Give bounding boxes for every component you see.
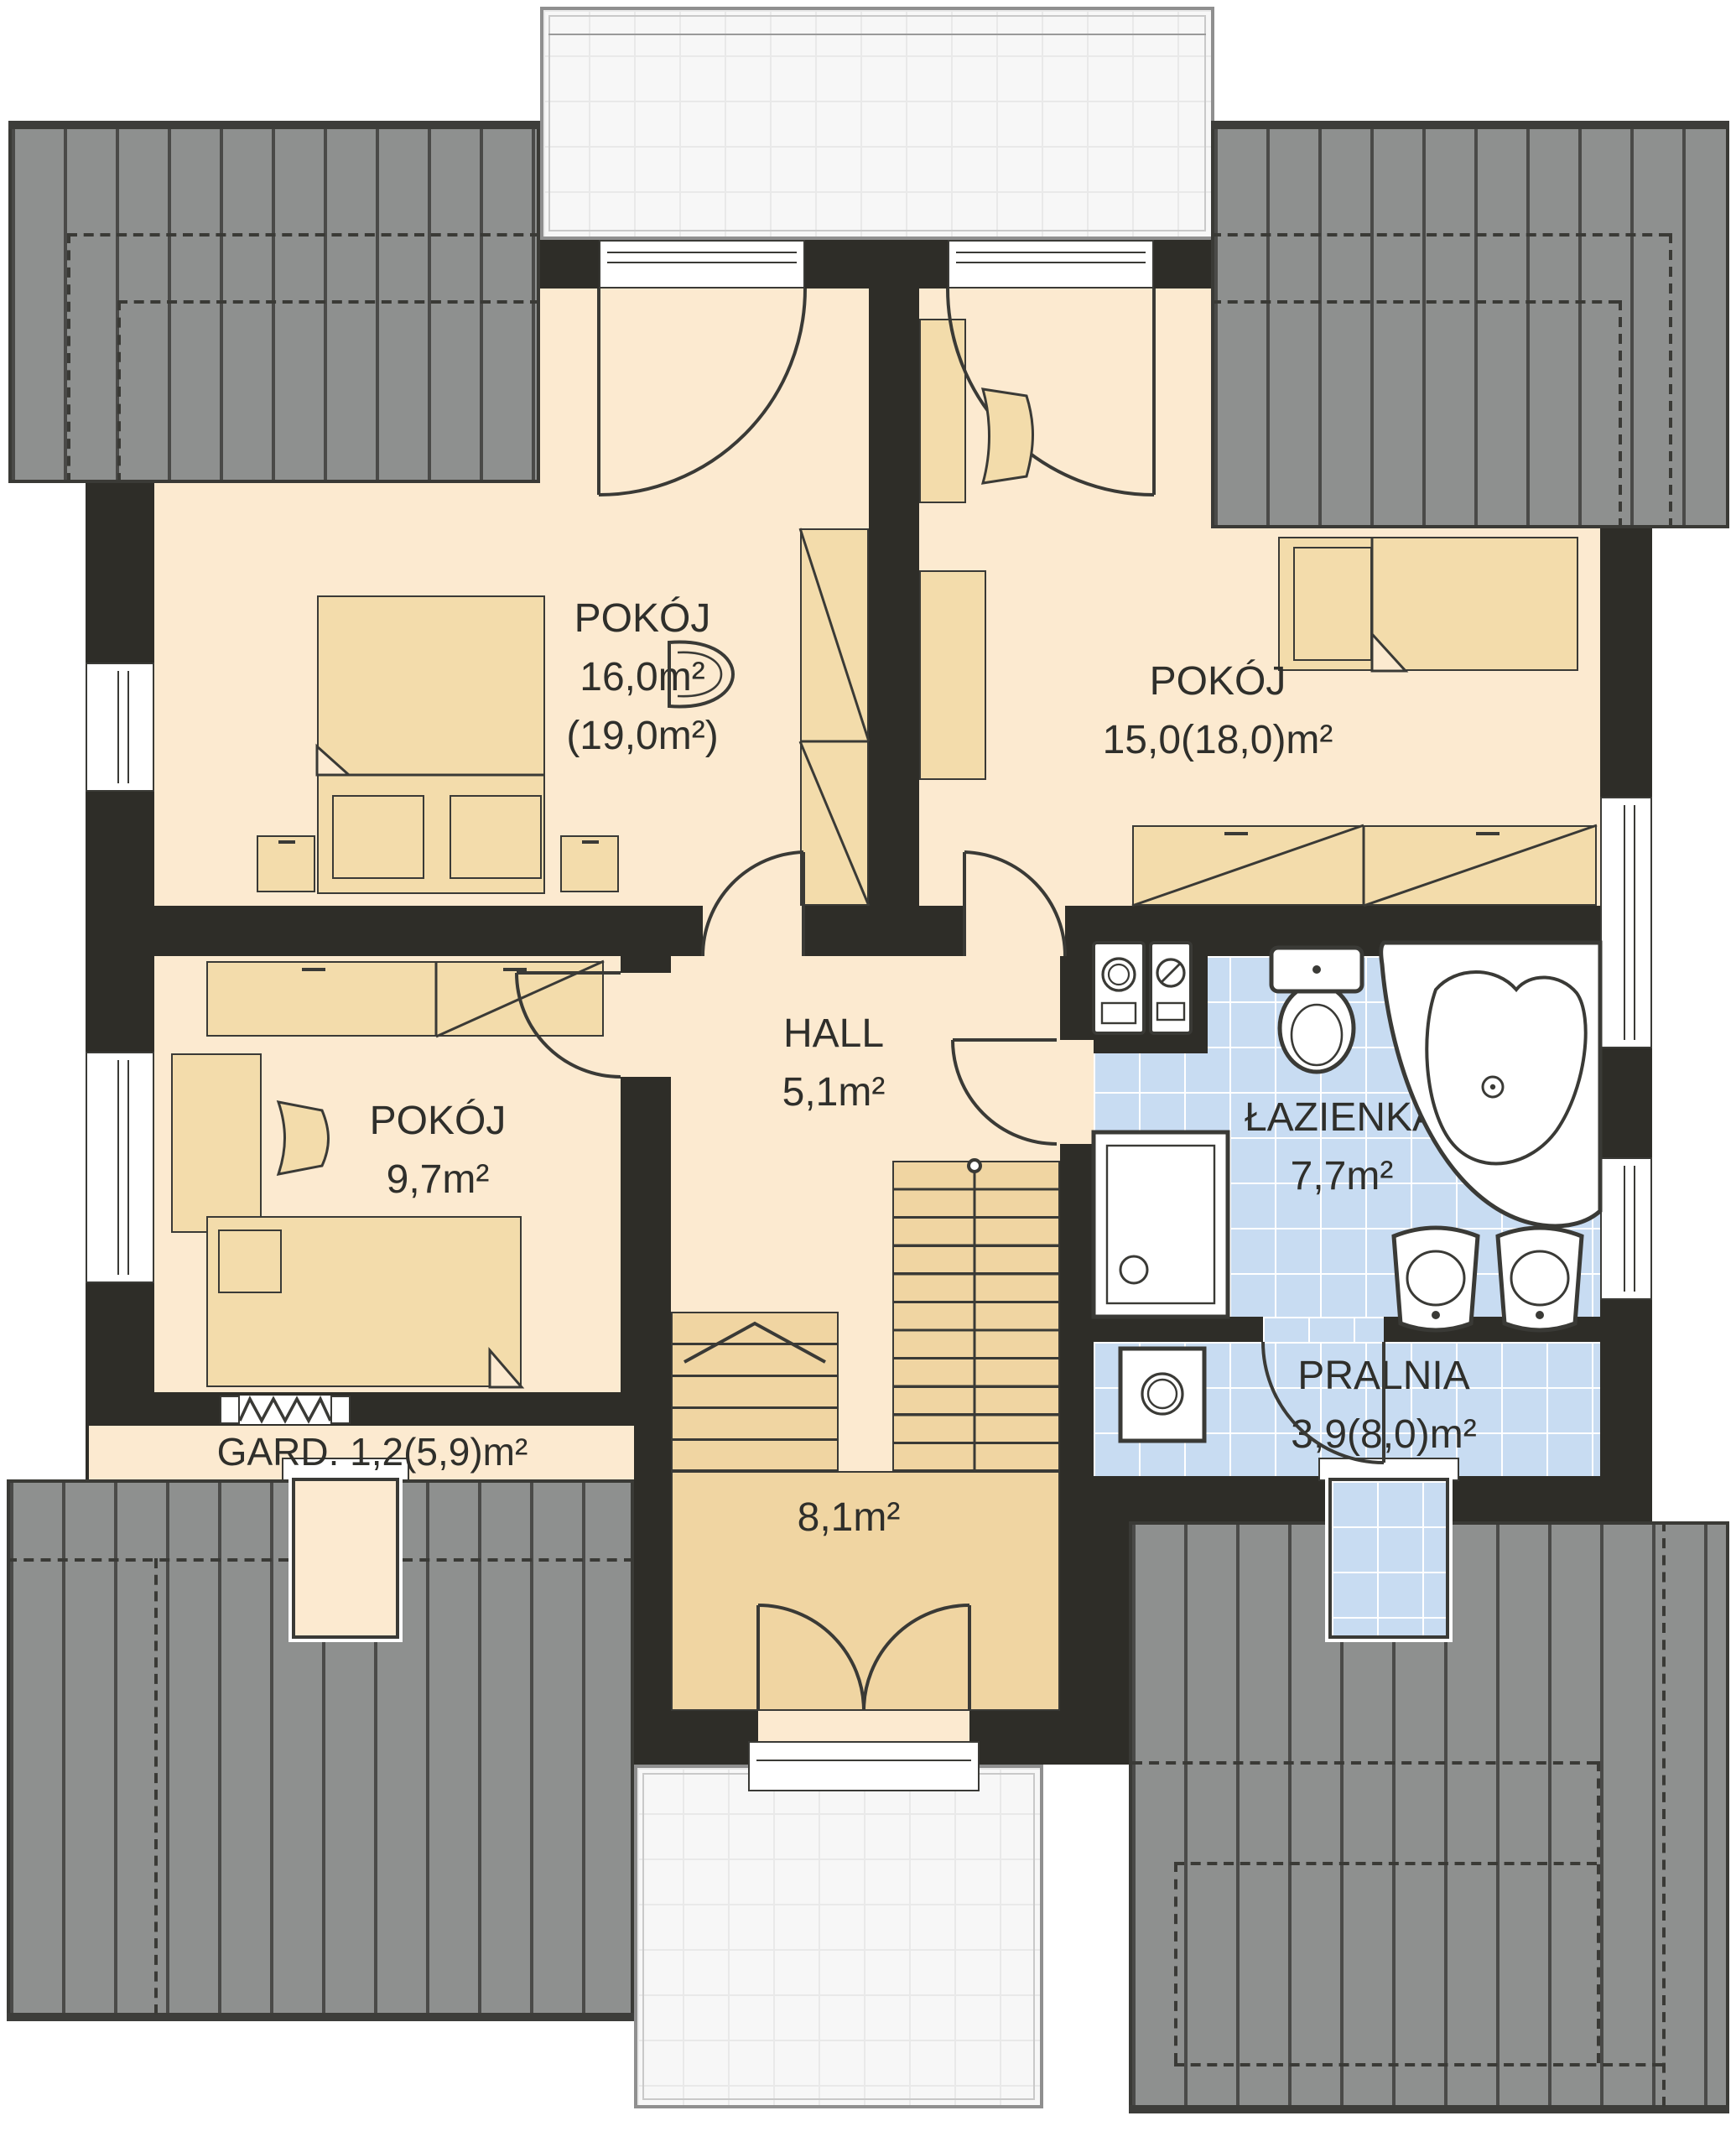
terrace-bottom-inner [642,1773,1035,2100]
room-name: PRALNIA [1291,1347,1476,1406]
window-glazing [117,671,128,783]
balcony-door-left [599,240,805,289]
pillow [450,795,542,879]
room-label-lazienka: ŁAZIENKA 7,7m² [1245,1089,1439,1206]
door-opening-pralnia [1263,1317,1384,1342]
door-opening-pokoj-3 [621,973,671,1077]
door-opening-pokoj-1 [703,906,803,956]
room-name: HALL [782,1005,886,1063]
room-label-hall: HALL 5,1m² [782,1005,886,1122]
window [1600,1157,1652,1300]
room-name: POKÓJ [566,590,718,648]
window [1600,797,1652,1048]
utility-block [1094,956,1208,1053]
terrace-top-edge [548,34,1206,35]
window-glazing [956,252,1146,263]
roof-ridge-band [1129,2105,1729,2113]
room-area-alt: (19,0m²) [566,707,718,766]
roof-dashed-line [1597,1761,1600,2063]
room-area: 15,0(18,0)m² [1103,711,1333,770]
roof-dashed-line [7,1558,288,1562]
room-label-pokoj-1: POKÓJ 16,0m² (19,0m²) [566,590,718,766]
roof-dashed-line [1174,1862,1177,2063]
window-glazing [117,1060,128,1275]
door-threshold [748,1741,980,1791]
folding-door-post [220,1396,240,1424]
terrace-top-inner [548,15,1206,231]
nightstand [257,835,315,892]
window [86,1052,154,1283]
pillow [332,795,424,879]
terrace-top [540,7,1214,240]
room-name: POKÓJ [370,1092,507,1151]
balcony-door-right [948,240,1154,289]
pillow [1293,547,1372,661]
room-name: ŁAZIENKA [1245,1089,1439,1147]
room-name: POKÓJ [1103,652,1333,711]
room-label-pokoj-3: POKÓJ 9,7m² [370,1092,507,1209]
window [86,663,154,792]
room-area: 1,2(5,9)m² [350,1430,528,1474]
door-opening-pokoj-2 [964,906,1065,956]
stair-flight-left [671,1312,839,1471]
roof-dashed-line [1174,1862,1597,1865]
roof-plane-top-right [1211,121,1729,528]
roof-ridge-band [8,121,540,129]
terrace-bottom [634,1765,1043,2108]
floor-plan: POKÓJ 16,0m² (19,0m²) POKÓJ 15,0(18,0)m²… [0,0,1736,2147]
roof-dashed-line [1619,300,1622,528]
room-area: 8,1m² [798,1495,901,1541]
roof-dashed-line [67,233,540,237]
room-area: 16,0m² [566,648,718,707]
wardrobe-column [800,528,869,906]
nightstand [560,835,619,892]
room-area: 7,7m² [1245,1147,1439,1206]
room-label-garderoba: GARD. 1,2(5,9)m² [217,1423,528,1482]
roof-dashed-line [1132,1761,1597,1765]
folding-door-strip [240,1396,330,1424]
roof-ridge-band [1211,121,1729,129]
desk [171,1053,262,1233]
door-opening-lazienka [1057,1040,1094,1144]
roof-dashed-line [1662,1521,1666,2107]
pillow [218,1229,282,1293]
wardrobe-low [206,961,604,1037]
room-name: GARD. [217,1430,340,1474]
window-glazing [1624,805,1635,1040]
room-label-pralnia: PRALNIA 3,9(8,0)m² [1291,1347,1476,1464]
stair-flight-right [892,1161,1060,1471]
room-label-pokoj-2: POKÓJ 15,0(18,0)m² [1103,652,1333,770]
roof-dashed-line [1211,300,1619,304]
roof-ridge-band [7,2013,634,2021]
desk [919,319,966,503]
dormer-bay-garderoba [292,1478,399,1639]
threshold-line [756,1760,971,1761]
room-area: 3,9(8,0)m² [1291,1406,1476,1464]
roof-dashed-line [1174,2063,1662,2066]
room-area: 5,1m² [782,1063,886,1122]
cabinet [919,570,986,780]
room-label-staircase: 8,1m² [798,1489,901,1547]
folding-door-post [330,1396,351,1424]
roof-dashed-line [1669,233,1672,528]
window-glazing [1624,1166,1635,1292]
roof-dashed-line [117,300,121,483]
roof-dashed-line [403,1558,634,1562]
roof-dashed-line [154,1558,158,2014]
dormer-bay-pralnia [1328,1478,1449,1639]
window-glazing [607,252,797,263]
roof-dashed-line [67,233,70,483]
wardrobe-low [1132,825,1597,906]
room-area: 9,7m² [370,1151,507,1209]
roof-dashed-line [117,300,540,304]
roof-dashed-line [1211,233,1669,237]
